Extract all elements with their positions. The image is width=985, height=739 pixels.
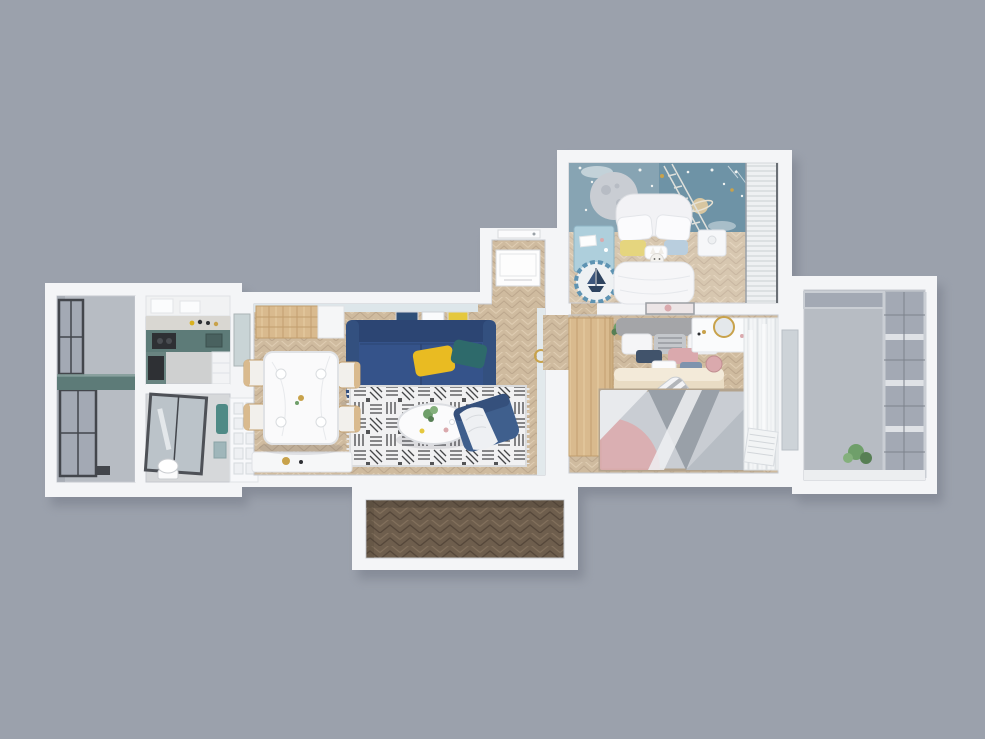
lower-balcony (366, 500, 564, 558)
dining-chair (338, 406, 360, 432)
bedroom-art-frame (646, 303, 694, 314)
gold-mirror (714, 317, 734, 337)
window-hardware (96, 466, 110, 475)
window-blinds (746, 163, 778, 303)
radiator (744, 428, 778, 466)
toilet (158, 459, 178, 479)
kids-bedroom (569, 163, 778, 304)
entry-console (496, 250, 540, 286)
teal-towel (216, 404, 228, 434)
balcony-top-window (804, 292, 884, 308)
kitchen (146, 296, 230, 394)
left-balcony (57, 296, 146, 482)
blue-kid-pillow (664, 240, 688, 255)
apartment-3d-floorplan (0, 0, 985, 739)
cooktop (152, 333, 176, 349)
balcony-window-lower (60, 390, 96, 476)
kids-nightstand (698, 230, 726, 256)
floorplan-screenshot (0, 0, 985, 739)
gold-vase (282, 457, 290, 465)
balcony-ledge (57, 376, 135, 390)
range-hood (151, 299, 173, 313)
kids-bed (614, 194, 694, 304)
sideboard (256, 306, 344, 338)
sink (206, 334, 222, 347)
dining-chair (244, 360, 266, 386)
balcony-window-upper (59, 300, 83, 374)
bathroom (145, 394, 230, 482)
bath-art (214, 442, 226, 458)
dining-table (259, 352, 343, 455)
oven (148, 356, 164, 380)
kids-rug (576, 262, 616, 302)
pass-through-window (234, 314, 250, 366)
dining-chair (244, 404, 266, 430)
sheer-curtains (744, 318, 778, 470)
entry-hall (492, 230, 545, 308)
balcony-door-glass (782, 330, 798, 450)
vanity-stool (706, 356, 722, 372)
tv-bench (252, 452, 352, 472)
balcony-ledge (804, 470, 925, 480)
tall-cabinet (212, 352, 230, 384)
dining-chair (338, 362, 360, 388)
yellow-kid-pillow (620, 240, 646, 256)
balcony-window-grid (884, 292, 925, 478)
